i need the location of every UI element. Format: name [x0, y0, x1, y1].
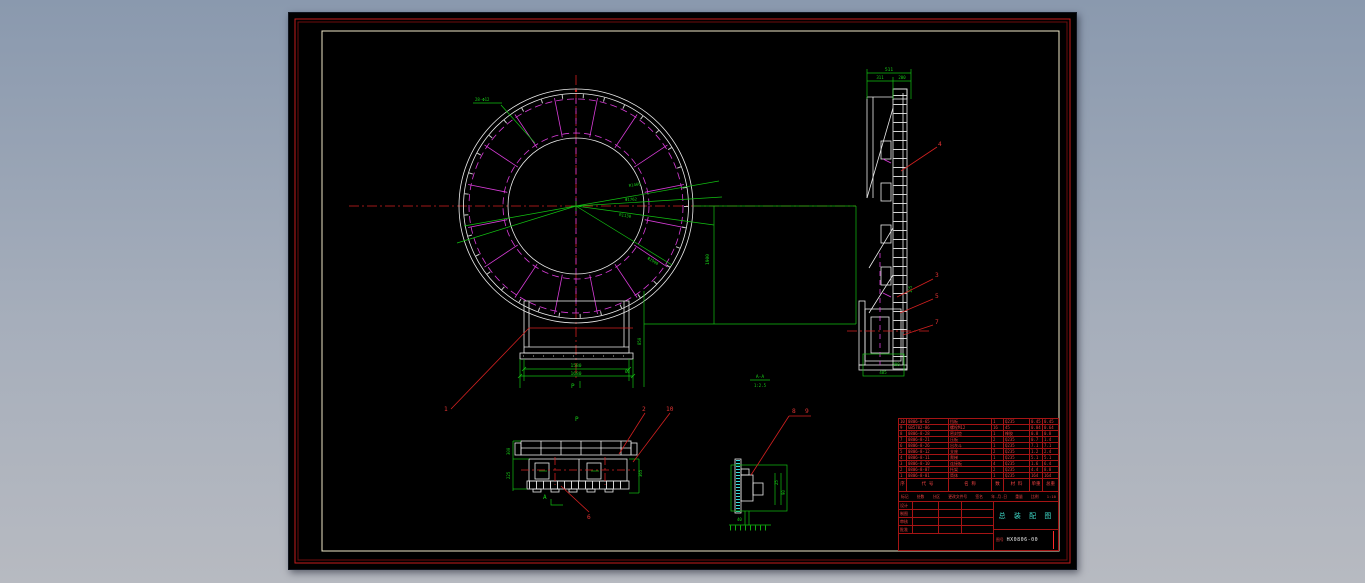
sig-date: [939, 526, 962, 534]
parts-table-rows: 10 0806-8-65 挡板 1 Q235 0.45 0.45 9 GB578…: [899, 419, 1058, 479]
sig-label: 审核: [899, 518, 913, 526]
balloon-2: 2: [642, 406, 646, 413]
footer-item: 标记: [901, 494, 909, 500]
drawing-number-label: 图号: [996, 537, 1004, 543]
footer-item: 年.月.日: [991, 494, 1007, 500]
title-block: 设计 制图 审核: [898, 501, 1059, 551]
balloon-5: 5: [935, 293, 939, 300]
section-balloon-leaders: [561, 413, 670, 512]
front-view: 28-Φ12 R1460 Φ1762 R1130 Φ2900 1900 850 …: [349, 75, 856, 413]
footer-item: 1:10: [1047, 494, 1056, 499]
dim-r1130: R1130: [619, 212, 632, 219]
dim-1580: 1580: [570, 363, 581, 369]
section-view: P: [506, 406, 674, 521]
center-mark-dot: [575, 90, 577, 92]
detail-dim-40: 40: [737, 517, 742, 522]
dim-r1460: R1460: [628, 181, 641, 188]
detail-dim-25: 25: [774, 480, 779, 485]
centerlines: [349, 75, 856, 381]
dim-225: 225: [506, 471, 511, 479]
section-dims: [513, 441, 639, 505]
sig-label: 制图: [899, 510, 913, 518]
cad-paperspace-canvas[interactable]: 28-Φ12 R1460 Φ1762 R1130 Φ2900 1900 850 …: [0, 0, 1365, 583]
header-cell: 名 称: [949, 479, 992, 492]
section-structure: [515, 441, 637, 492]
balloon-8: 8: [792, 408, 796, 415]
detail-scale: 1:2.5: [754, 383, 767, 388]
detail-balloon-leaders: [751, 416, 811, 475]
sig-label: 批准: [899, 526, 913, 534]
balloon-1-leader: [451, 328, 633, 409]
section-cut-marker: A: [543, 494, 547, 501]
drawing-number-cell: 图号 HX0806-00: [994, 530, 1058, 550]
radial-leaders: [457, 103, 722, 265]
red-revision-mark: [1053, 531, 1054, 549]
header-cell: 序: [899, 479, 907, 492]
dim-base-200: 200: [892, 362, 900, 367]
balloon-3: 3: [935, 272, 939, 279]
sig-extra: [962, 518, 993, 526]
signature-row: 审核: [899, 518, 993, 526]
balloon-10: 10: [666, 406, 674, 413]
parts-table-header: 序代 号名 称数材 料单重总重: [899, 479, 1058, 492]
title-block-signature-rows: 设计 制图 审核: [899, 502, 994, 550]
side-view: 511 311 200 125 485 200 4 3 5 7: [847, 67, 942, 376]
hopper-outlet: [520, 301, 633, 359]
sig-name: [913, 502, 939, 510]
footer-item: 分区: [933, 494, 941, 500]
header-cell: 单重: [1030, 479, 1043, 492]
height-dim-box: [644, 206, 856, 387]
detail-title: A-A: [756, 374, 765, 380]
title-block-right: 总 装 配 图 图号 HX0806-00: [994, 502, 1058, 550]
sig-label: 设计: [899, 502, 913, 510]
signature-row: 批准: [899, 526, 993, 534]
footer-item: 处数: [917, 494, 925, 500]
footer-item: 比例: [1031, 494, 1039, 500]
sig-name: [913, 518, 939, 526]
drawing-sheet: 28-Φ12 R1460 Φ1762 R1130 Φ2900 1900 850 …: [288, 12, 1077, 570]
parts-table: 10 0806-8-65 挡板 1 Q235 0.45 0.45 9 GB578…: [898, 418, 1059, 502]
dim-200: 200: [898, 75, 906, 80]
sig-date: [939, 510, 962, 518]
dim-850: 850: [637, 337, 642, 345]
sig-extra: [962, 502, 993, 510]
dim-511: 511: [885, 67, 894, 73]
sig-extra: [962, 510, 993, 518]
header-cell: 代 号: [907, 479, 949, 492]
balloon-9: 9: [805, 408, 809, 415]
sig-name: [913, 526, 939, 534]
view-direction-marker: P: [571, 383, 575, 390]
sig-extra: [962, 526, 993, 534]
dim-60: 60: [625, 369, 630, 374]
section-view-label: P: [575, 416, 579, 423]
detail-structure: [735, 459, 763, 513]
dim-311: 311: [876, 75, 884, 80]
side-structure: [859, 89, 907, 370]
sig-name: [913, 510, 939, 518]
balloon-1: 1: [444, 406, 448, 413]
sig-date: [939, 518, 962, 526]
footer-item: 重量: [1015, 494, 1023, 500]
dim-od2900: Φ2900: [646, 256, 659, 267]
balloon-6: 6: [587, 514, 591, 521]
drawing-title: 总 装 配 图: [994, 502, 1058, 530]
detail-dim-90: 90: [781, 490, 786, 495]
hole-callout: 28-Φ12: [475, 97, 490, 102]
balloon-4: 4: [938, 141, 942, 148]
signature-row: 制图: [899, 510, 993, 518]
header-cell: 材 料: [1004, 479, 1030, 492]
dim-1900: 1900: [705, 254, 711, 265]
footer-item: 更改文件号: [948, 494, 967, 500]
drawing-number: HX0806-00: [1007, 537, 1039, 543]
signature-row: 设计: [899, 502, 993, 510]
balloon-7: 7: [935, 319, 939, 326]
dim-d1762: Φ1762: [625, 197, 638, 202]
sig-date: [939, 502, 962, 510]
dim-1680: 1680: [570, 371, 581, 377]
dim-365: 365: [638, 469, 643, 477]
footer-item: 签名: [975, 494, 983, 500]
dim-300: 300: [506, 447, 511, 455]
dim-485: 485: [879, 370, 887, 375]
header-cell: 数: [992, 479, 1004, 492]
detail-view: A-A 1:2.5: [729, 374, 811, 528]
header-cell: 总重: [1043, 479, 1058, 492]
